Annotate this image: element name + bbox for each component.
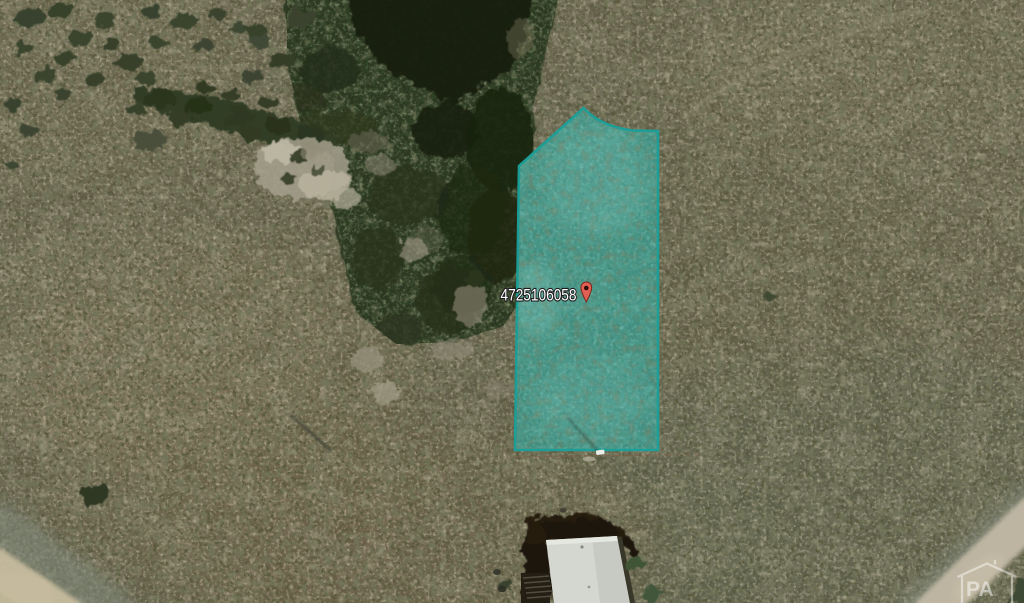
svg-text:4725106058: 4725106058 [501, 287, 577, 305]
svg-text:PA: PA [966, 578, 994, 601]
